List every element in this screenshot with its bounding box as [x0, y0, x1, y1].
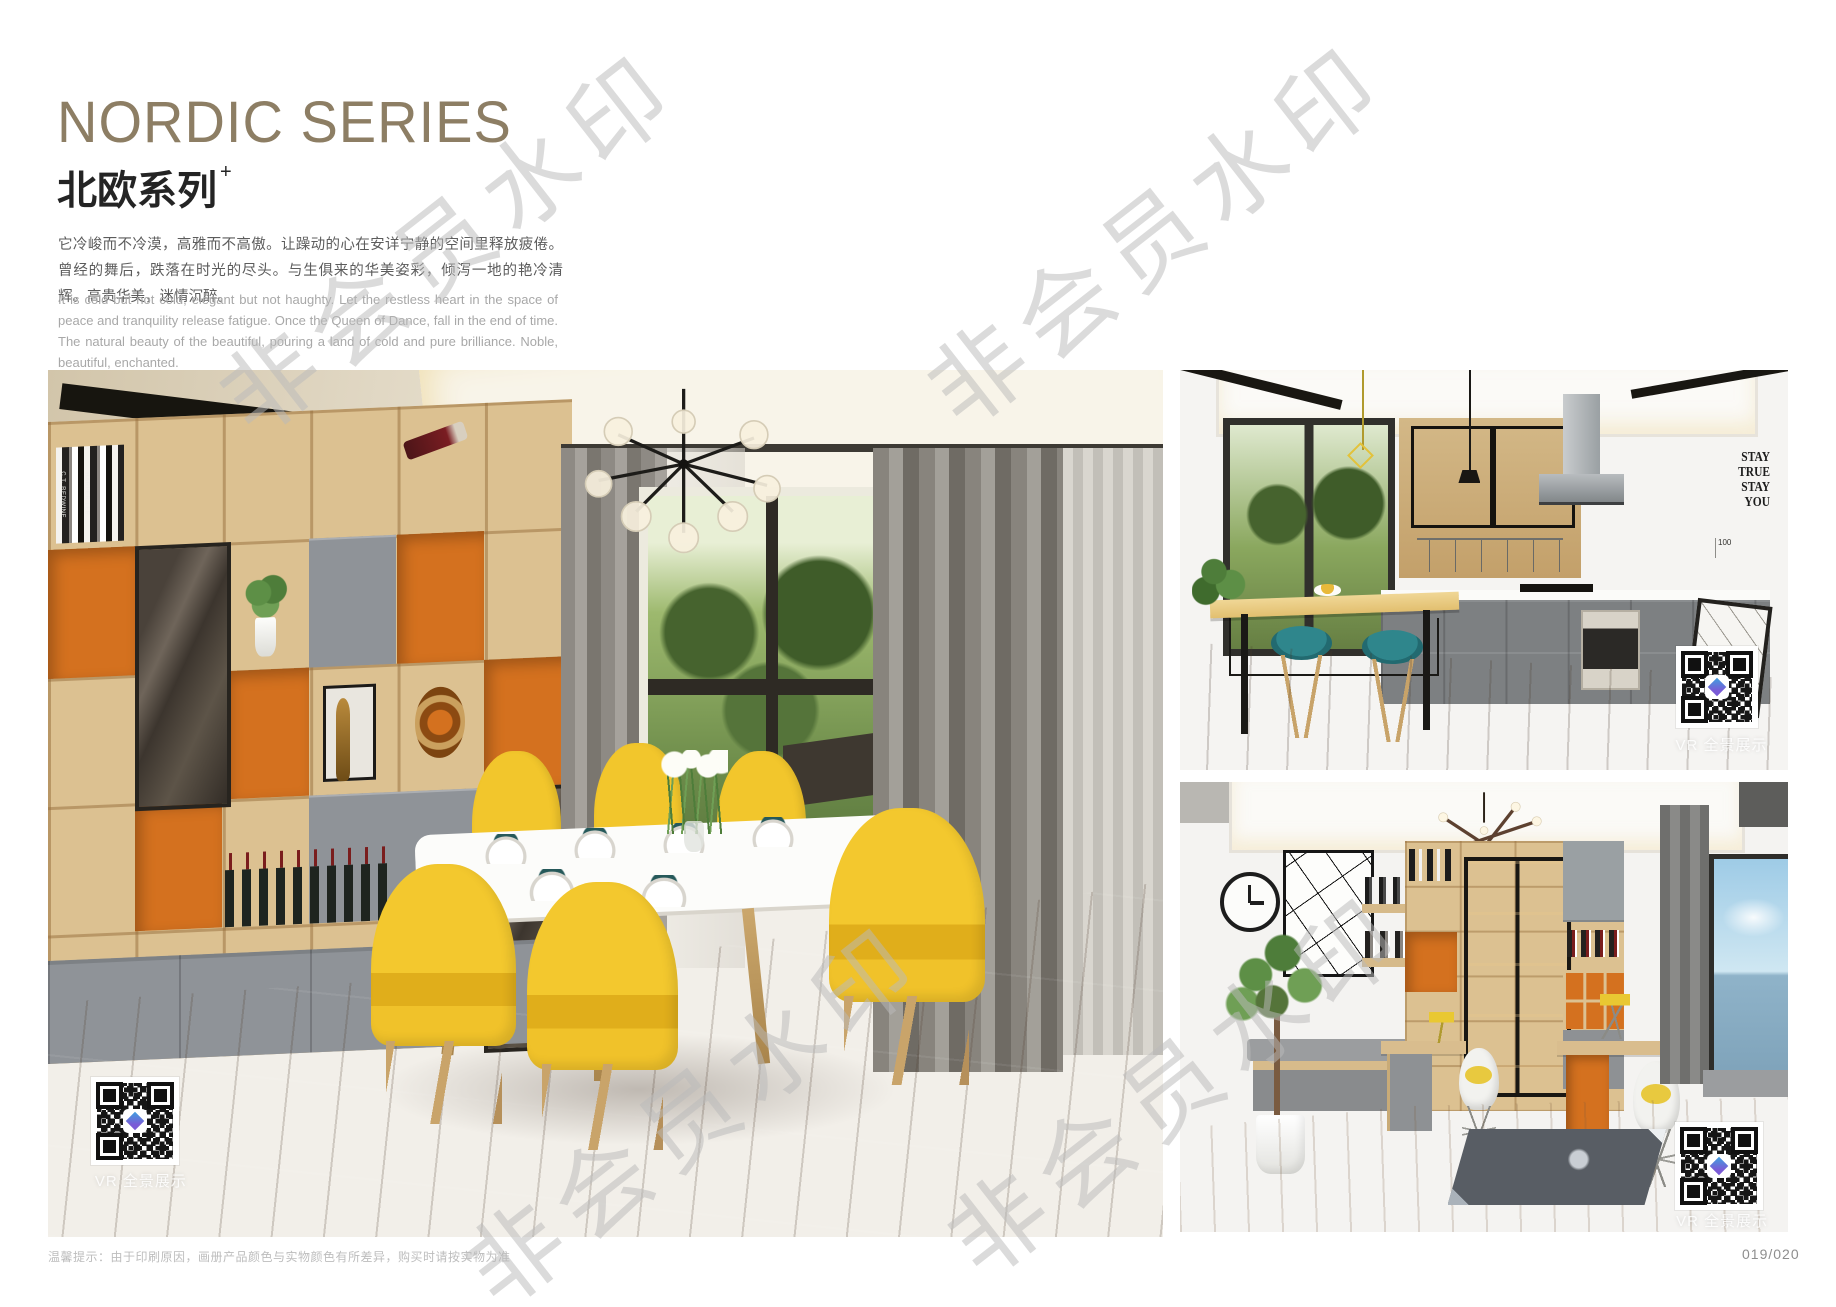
shelf-books [1567, 930, 1620, 957]
geometric-rug [1448, 1129, 1667, 1206]
photo-study-room: VR 全景展示 [1180, 782, 1788, 1232]
window-seat-cushion [1703, 1070, 1788, 1097]
place-setting [750, 817, 796, 847]
height-ruler-decal: 100 [1715, 538, 1731, 558]
chair-cushion-yellow [1465, 1066, 1492, 1084]
photo-kitchen: STAY TRUE STAY YOU 100 VR 全景展示 [1180, 370, 1788, 770]
vr-panorama-label: VR 全景展示 [1676, 734, 1768, 755]
window [1709, 854, 1788, 1080]
page-number: 019/020 [1742, 1246, 1800, 1262]
cloud [1722, 898, 1785, 937]
flower-vase [684, 821, 704, 852]
orange-cubby [135, 799, 222, 931]
qr-code [1676, 646, 1758, 728]
dining-chair-yellow [829, 808, 985, 1085]
desk-lamp-yellow [1429, 1012, 1453, 1044]
qr-logo-cube-icon [1705, 675, 1729, 699]
range-hood-chimney [1563, 394, 1599, 482]
desk-lamp-yellow [1600, 994, 1630, 1039]
vr-panorama-label: VR 全景展示 [95, 1170, 187, 1191]
orange-cubby [397, 531, 484, 663]
deco-objects [1409, 849, 1453, 881]
plant-foliage [1223, 926, 1332, 1034]
gray-cabinet-door [309, 535, 396, 667]
glass-display-cabinet [135, 542, 231, 811]
dining-chair-yellow [527, 882, 678, 1151]
series-title: NORDIC SERIES [57, 88, 512, 156]
wall-quote: STAY TRUE STAY YOU [1691, 450, 1770, 510]
pendant-cord [1362, 370, 1364, 450]
potted-plant [242, 565, 289, 625]
wine-bottles-row [225, 862, 393, 927]
sputnik-chandelier [561, 370, 806, 604]
orange-cubby [223, 667, 310, 799]
photo-dining-room: C.T. REDWINE HARPER LEE [48, 370, 1163, 1237]
qr-code [91, 1077, 179, 1165]
utensil-rail [1417, 538, 1563, 572]
wall-clock [1220, 872, 1280, 932]
place-setting [483, 834, 529, 864]
gray-upper-cabinet [1563, 841, 1624, 922]
place-setting [572, 828, 618, 858]
bowl [1314, 584, 1341, 596]
footer-print-note: 温馨提示：由于印刷原因，画册产品颜色与实物颜色有所差异，购买时请按实物为准 [48, 1248, 511, 1265]
ceiling-corner [1739, 782, 1788, 827]
plant-pot [255, 617, 276, 656]
flowers-white [661, 750, 728, 779]
catalog-page: NORDIC SERIES 北欧系列+ 它冷峻而不冷漠，高雅而不高傲。让躁动的心… [0, 0, 1836, 1307]
qr-code [1675, 1122, 1763, 1210]
plant-leaves [1192, 546, 1247, 610]
window-mullion [648, 679, 893, 695]
series-subtitle: 北欧系列+ [57, 158, 232, 216]
ceiling-corner [1180, 782, 1229, 823]
figurine [336, 698, 350, 782]
range-hood [1539, 474, 1624, 505]
pendant-cord [1469, 370, 1471, 474]
desk-top [1557, 1041, 1660, 1055]
book-spine: C.T. REDWINE [60, 449, 66, 539]
curtain-right [1660, 805, 1709, 1084]
orange-cubby [48, 547, 135, 679]
qr-logo-cube-icon [1707, 1154, 1731, 1178]
dining-chair-yellow [371, 864, 516, 1124]
description-english: It is cold but not cold, elegant but not… [58, 289, 558, 373]
cooktop [1520, 584, 1593, 591]
books-row [56, 444, 124, 543]
book-spine: HARPER LEE [84, 448, 90, 538]
subtitle-plus-mark: + [220, 161, 232, 183]
vr-panorama-label: VR 全景展示 [1676, 1210, 1768, 1231]
qr-logo-cube-icon [123, 1109, 147, 1133]
orange-cubby [1405, 932, 1458, 991]
